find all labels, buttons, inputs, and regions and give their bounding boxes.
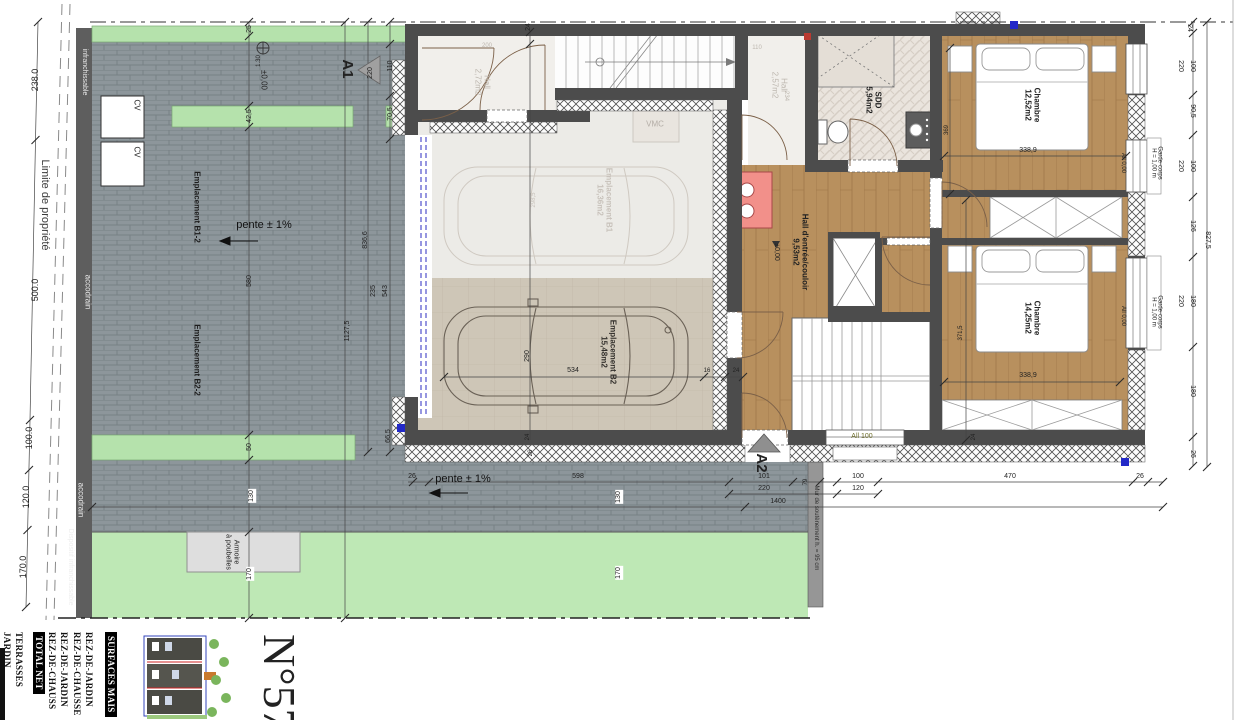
bin-cabinet [187,532,300,572]
hall-272-floor [418,36,555,110]
floor-plan-sheet: 238.0Limite de propriété500.0100.0120.01… [0,0,1240,720]
site-plan-thumbnail [132,632,234,720]
cv-box [101,96,144,138]
surface-table-row: REZ-DE-JARDIN [59,632,69,707]
duct-shaft [833,238,878,312]
staircase-lower [792,318,930,440]
hall-257-floor [748,36,805,165]
vmc-unit [633,108,679,142]
paved-strip-south [408,462,808,532]
surface-table: JARDINTERRASSESTOTAL NETREZ-DE-CHAUSSREZ… [0,632,130,720]
surface-table-header: SURFACES MAIS [105,632,117,717]
surface-table-row: REZ-DE-CHAUSS [47,632,57,709]
edge-strip [76,28,92,618]
technical-cabinet [737,172,772,228]
sheet-number: N°57 [253,634,306,720]
garage-door [405,135,432,418]
retaining-wall [808,462,823,607]
floor-plan-drawing [0,0,1240,720]
surface-table-row: REZ-DE-JARDIN [84,632,94,707]
toilet [818,120,827,144]
staircase-upper [555,34,736,88]
garage-floor-b2 [405,278,727,430]
surface-table-header: TOTAL NET [33,632,45,694]
surface-table-row: REZ-DE-CHAUSSE [72,632,82,716]
surface-table-row: JARDIN [2,632,12,668]
cv-box [101,142,144,186]
surface-table-row: TERRASSES [14,632,24,687]
